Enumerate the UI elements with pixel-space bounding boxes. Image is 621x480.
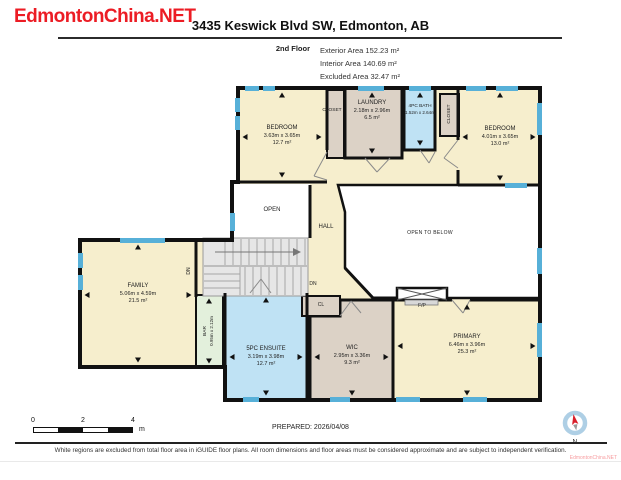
room-label-primary: PRIMARY 6.46m x 3.96m 25.3 m² xyxy=(449,334,485,356)
page-edge xyxy=(0,461,621,462)
footer-divider xyxy=(15,442,607,444)
compass-icon: N xyxy=(561,410,589,446)
disclaimer-text: White regions are excluded from total fl… xyxy=(0,447,621,454)
room-label-family: FAMILY 5.06m x 4.59m 21.5 m² xyxy=(120,283,156,305)
fireplace-label: F/P xyxy=(418,303,426,310)
room-label-bedroom-left: BEDROOM 3.63m x 3.65m 12.7 m² xyxy=(264,125,300,147)
room-label-open-to-below: OPEN TO BELOW xyxy=(407,230,453,237)
room-label-hall: HALL xyxy=(318,224,333,232)
room-label-closet-right: CLOSET xyxy=(447,104,453,123)
scale-tick-2: 2 xyxy=(81,417,85,424)
floorplan-svg xyxy=(0,0,621,480)
room-label-bedroom-right: BEDROOM 4.01m x 3.65m 13.0 m² xyxy=(482,126,518,148)
room-label-ensuite: 5PC ENSUITE 3.19m x 3.98m 12.7 m² xyxy=(246,346,285,368)
room-label-open: OPEN xyxy=(263,207,280,215)
stairs xyxy=(203,238,308,296)
stairs-down-label-right: DN xyxy=(309,281,316,288)
scale-tick-0: 0 xyxy=(31,417,35,424)
room-label-wic: WIC 2.95m x 3.36m 9.3 m² xyxy=(334,345,370,367)
room-label-bar: BAR 0.95m x 2.12m xyxy=(203,316,215,346)
laundry-room xyxy=(345,88,402,158)
room-label-laundry: LAUNDRY 2.18m x 2.96m 6.5 m² xyxy=(354,100,390,122)
room-label-closet-left: CLOSET xyxy=(322,108,341,114)
room-label-bath: 4PC BATH 1.52m x 2.64m xyxy=(405,104,435,116)
open-to-below-area xyxy=(338,185,540,298)
room-label-cl: CL xyxy=(318,302,324,309)
watermark-bottom: EdmontonChina.NET xyxy=(570,455,617,461)
closet-left-room xyxy=(327,90,344,158)
stairs-down-label-left: DN xyxy=(186,267,193,274)
scale-tick-4: 4 xyxy=(131,417,135,424)
prepared-date: PREPARED: 2026/04/08 xyxy=(0,424,621,431)
